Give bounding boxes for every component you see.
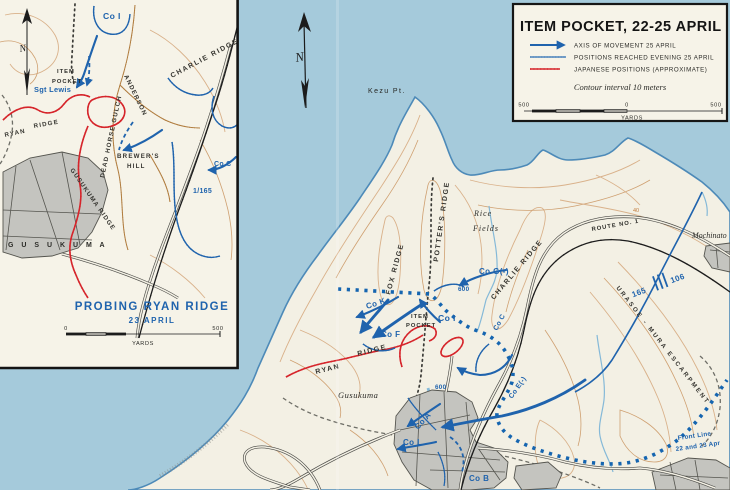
label-co-f: Co F: [381, 330, 400, 339]
inset-label-co-c: Co C: [214, 161, 232, 168]
label-elev-600-a: 600: [458, 286, 470, 293]
label-item: ITEM: [411, 314, 429, 320]
inset-scale-unit: YARDS: [132, 341, 154, 347]
map-title: ITEM POCKET, 22-25 APRIL: [520, 19, 722, 35]
legend-japanese-label: JAPANESE POSITIONS (APPROXIMATE): [574, 67, 707, 74]
scale-zero: 0: [625, 103, 629, 109]
label-rice: Rice: [473, 209, 492, 218]
inset-title: PROBING RYAN RIDGE: [75, 301, 230, 313]
label-co-g: Co G(-): [479, 267, 509, 276]
inset-scale-500: 500: [212, 326, 223, 332]
inset-label-brewers: BREWER'S: [117, 153, 160, 160]
inset-scale-0: 0: [64, 326, 68, 332]
label-co-b: Co B: [469, 474, 489, 483]
inset-label-co-i: Co I: [103, 11, 121, 21]
scale-right-500: 500: [710, 103, 721, 109]
inset-label-sgt-lewis: Sgt Lewis: [34, 85, 71, 94]
label-co-i: Co I: [438, 313, 456, 323]
inset-subtitle: 23 APRIL: [129, 316, 176, 325]
inset-label-1-165: 1/165: [193, 188, 212, 195]
legend-axis-label: AXIS OF MOVEMENT 25 APRIL: [574, 43, 676, 50]
label-kezu-pt: Kezu Pt.: [368, 88, 406, 95]
inset-label-gusukuma-town: G U S U K U M A: [8, 242, 108, 249]
label-elev-600-b: 600: [435, 384, 447, 391]
contour-note: Contour interval 10 meters: [574, 82, 667, 92]
inset-label-item: ITEM: [57, 69, 75, 75]
label-pocket: POCKET: [406, 323, 436, 329]
inset-label-hill: HILL: [127, 163, 146, 170]
inset-map: Co I CHARLIE RIDGE ITEM POCKET Sgt Lewis…: [0, 0, 242, 369]
title-legend-box: ITEM POCKET, 22-25 APRIL AXIS OF MOVEMEN…: [513, 4, 727, 122]
scale-unit: YARDS: [621, 116, 643, 122]
paper-fold: [336, 0, 339, 490]
legend-positions-label: POSITIONS REACHED EVENING 25 APRIL: [574, 55, 714, 62]
label-mochinato: Mochinato: [691, 231, 727, 240]
label-fields: Fields: [472, 224, 499, 233]
label-elev-40: 40: [633, 208, 639, 214]
scale-left-500: 500: [518, 103, 529, 109]
label-co-l: Co L: [403, 438, 422, 447]
label-gusukuma: Gusukuma: [338, 390, 378, 400]
item-pocket-map: 165 106: [0, 0, 730, 490]
